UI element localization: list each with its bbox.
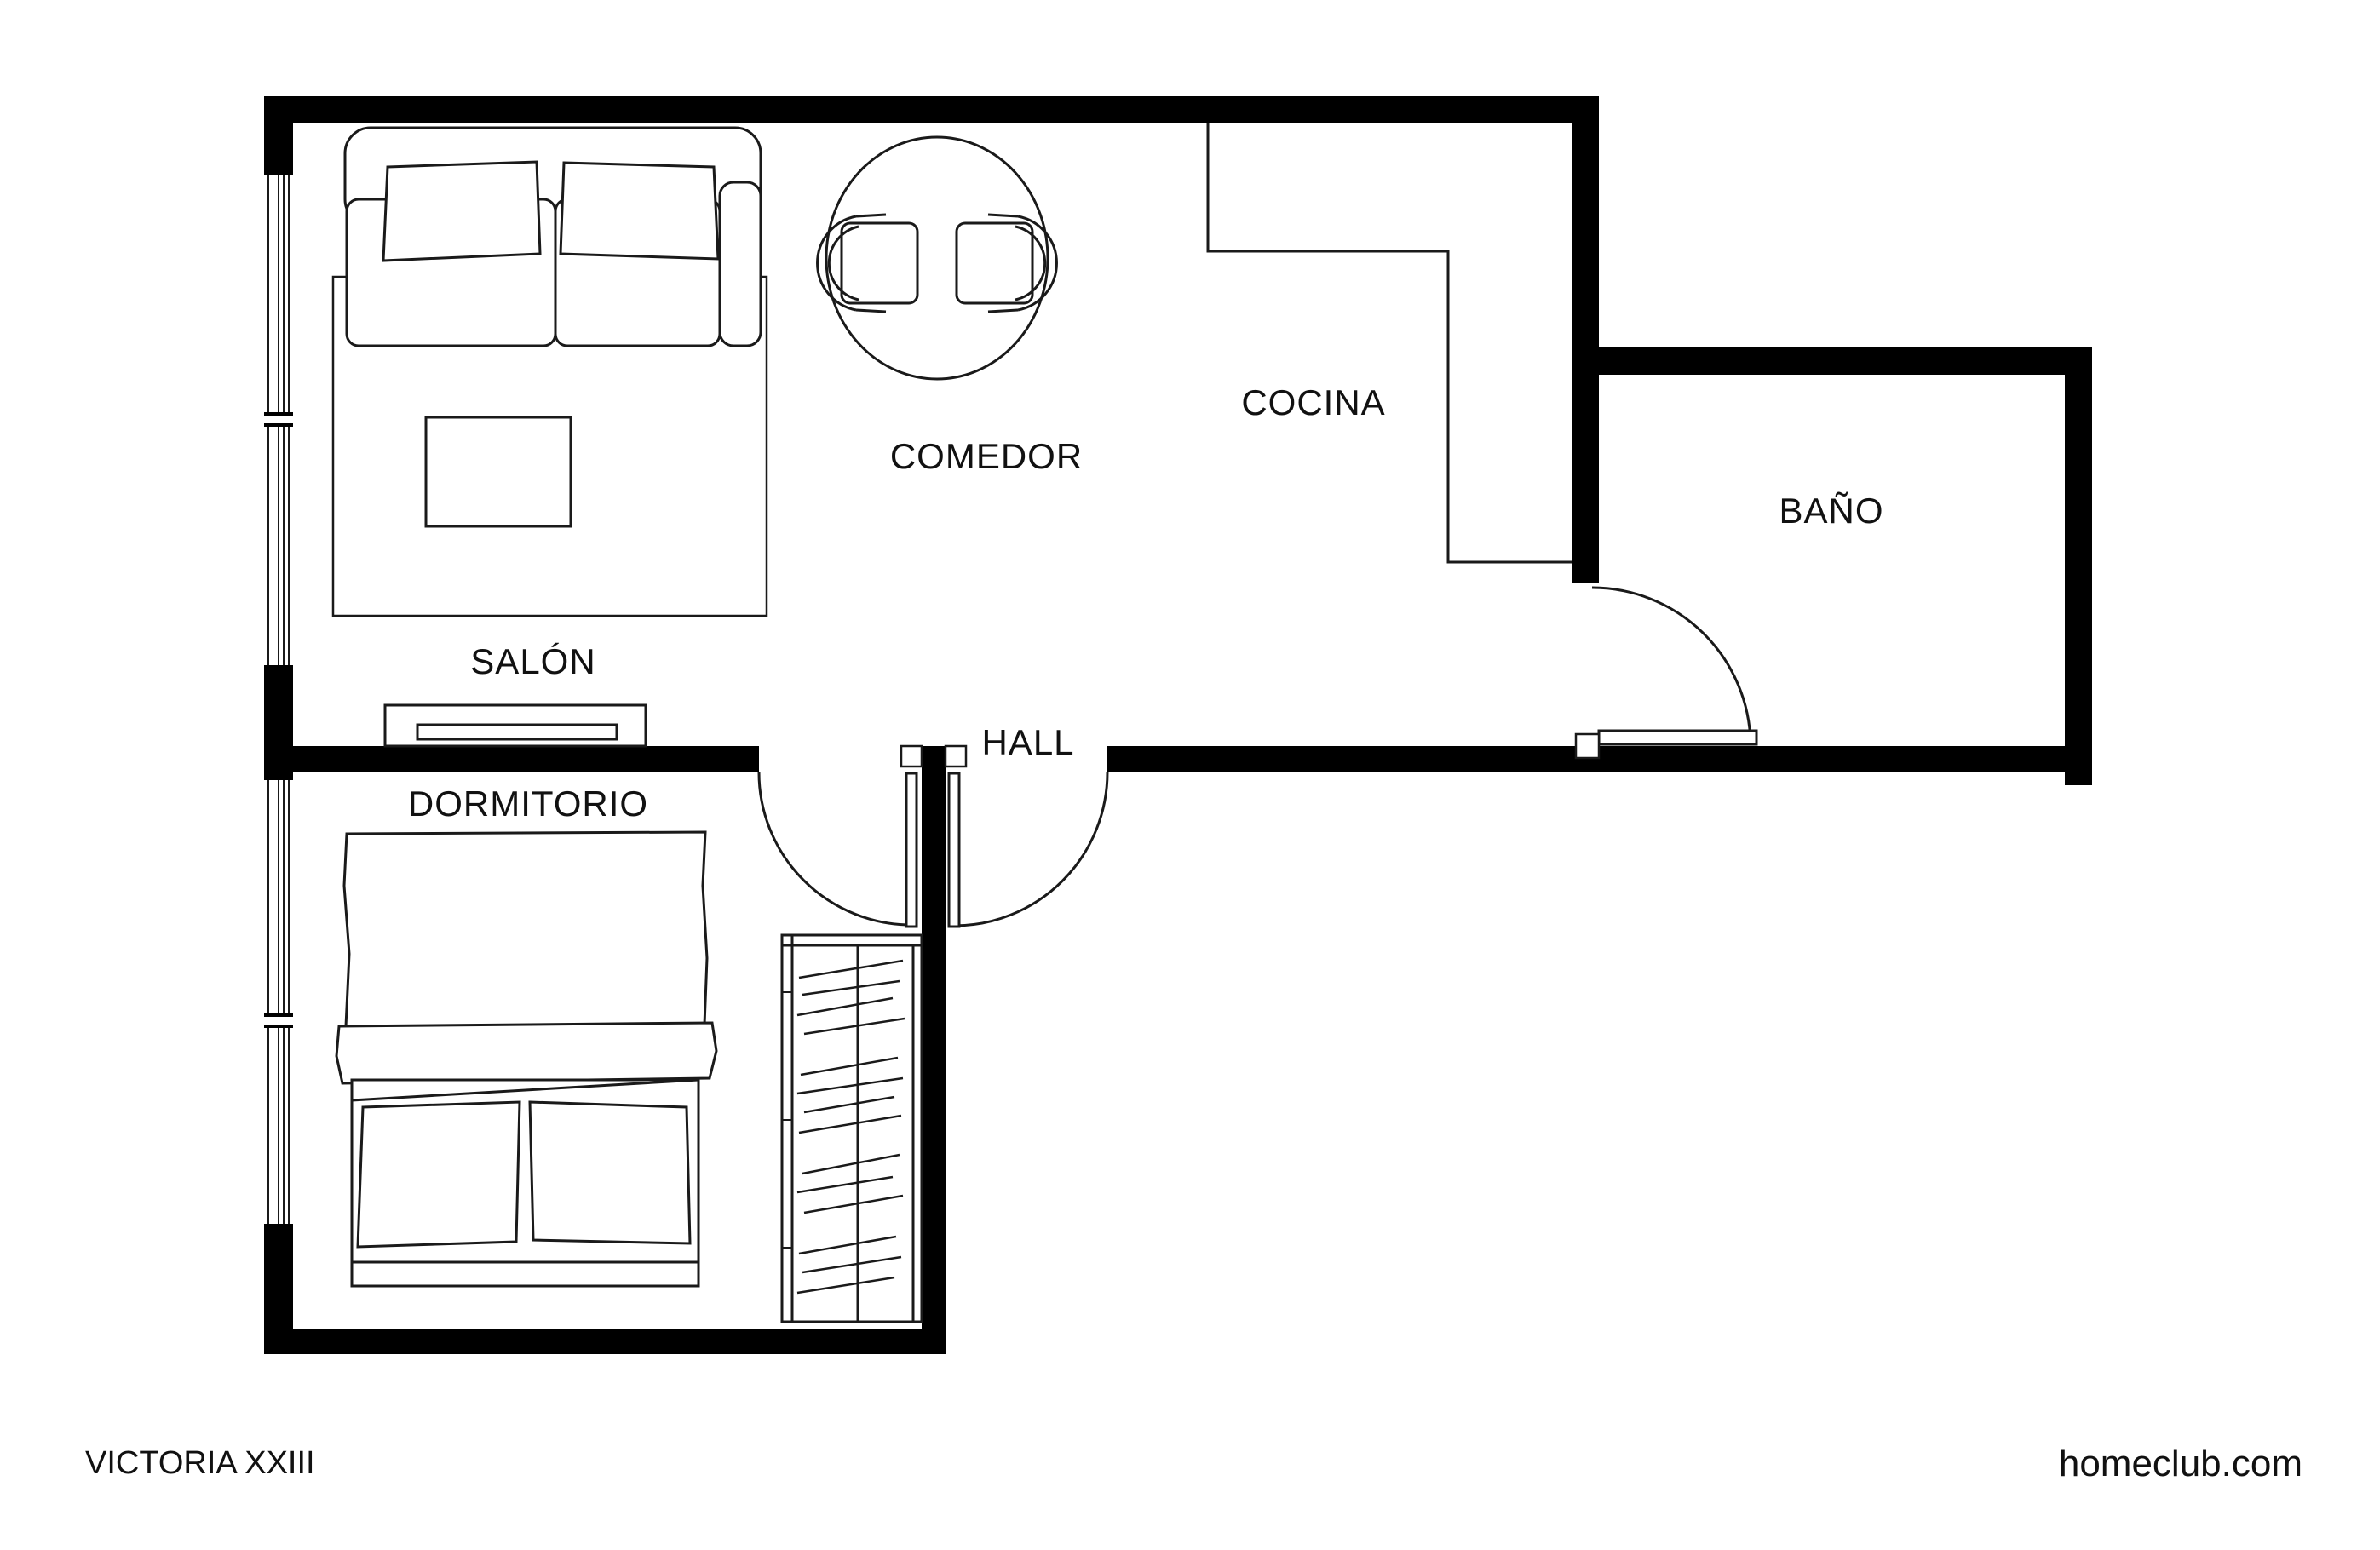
bed-duvet [344, 832, 707, 1026]
wall-right-kitchen [1572, 96, 1599, 583]
coffee-table [426, 417, 571, 526]
floor-plan-drawing: SALÓN COMEDOR COCINA BAÑO HALL DORMITORI… [0, 0, 2380, 1550]
wall-bottom [264, 1329, 946, 1354]
pillow-left [358, 1102, 520, 1247]
project-name: VICTORIA XXIII [85, 1445, 315, 1481]
wall-bano-right [2065, 347, 2092, 785]
wall-salon-dormitorio [293, 746, 759, 772]
bed-fold [336, 1023, 716, 1083]
wall-wardrobe-right [922, 746, 946, 1354]
label-dormitorio: DORMITORIO [408, 784, 648, 824]
pillow-right [530, 1102, 690, 1243]
wardrobe [782, 935, 922, 1322]
label-hall: HALL [981, 722, 1074, 762]
label-comedor: COMEDOR [890, 436, 1083, 476]
bedroom-door [759, 746, 922, 927]
bedroom-furniture [336, 832, 922, 1322]
sofa-pillow-right [561, 163, 718, 259]
tv-unit [385, 705, 646, 746]
kitchen-divider-line [1208, 123, 1572, 562]
dining-set [818, 137, 1057, 379]
bedroom-window [264, 773, 293, 1231]
hall-door [946, 746, 1107, 927]
wall-left-pier-top [264, 96, 293, 174]
label-bano: BAÑO [1779, 491, 1883, 531]
sofa [345, 128, 761, 346]
wall-bano-top [1572, 347, 2092, 375]
floor-plan-page: SALÓN COMEDOR COCINA BAÑO HALL DORMITORI… [0, 0, 2380, 1550]
website-link: homeclub.com [2059, 1443, 2302, 1484]
bathroom-door [1576, 588, 1756, 758]
sofa-pillow-left [383, 162, 540, 261]
tv-screen [417, 725, 617, 739]
sofa-armrest [720, 182, 761, 346]
label-cocina: COCINA [1241, 382, 1385, 422]
wall-top [264, 96, 1599, 123]
salon-window [264, 168, 293, 672]
headboard [352, 1262, 698, 1286]
label-salon: SALÓN [470, 641, 595, 681]
wall-left-pier-mid [264, 669, 293, 773]
